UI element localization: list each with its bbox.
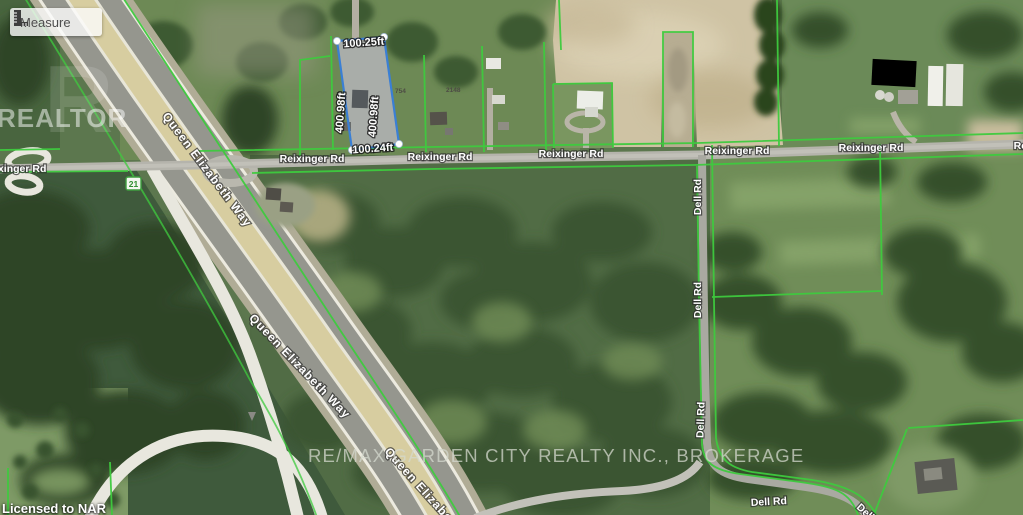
dell-label: Dell Rd — [694, 402, 707, 439]
reixinger-label: Reixinger Rd — [1014, 140, 1023, 152]
gravel-patch — [196, 4, 316, 76]
map-imagery: 21 Reixinger Rd Reixinger Rd Reixinger R… — [0, 0, 1023, 515]
dell-label: Dell Rd — [692, 282, 704, 318]
reixinger-label: Reixinger Rd — [539, 148, 604, 160]
driveway-top — [352, 0, 359, 40]
reixinger-label: Reixinger Rd — [408, 151, 473, 163]
reixinger-label: Reixinger Rd — [839, 142, 904, 154]
address-label: 2148 — [446, 87, 461, 94]
reixinger-label: Reixinger Rd — [705, 145, 770, 157]
highway-21-shield: 21 — [126, 177, 141, 190]
reixinger-label: Reixinger Rd — [280, 153, 345, 165]
dell-label: Dell Rd — [750, 495, 787, 509]
reixinger-label: Reixinger Rd — [0, 163, 46, 175]
dell-label: Dell Rd — [692, 179, 704, 215]
measure-vertex-handle[interactable] — [333, 37, 340, 44]
highway-shield-number: 21 — [129, 179, 139, 189]
address-label: 754 — [395, 88, 406, 95]
measure-vertex-handle[interactable] — [395, 140, 402, 147]
aerial-map[interactable]: 21 Reixinger Rd Reixinger Rd Reixinger R… — [0, 0, 1023, 515]
measure-button[interactable]: Measure — [10, 8, 102, 36]
